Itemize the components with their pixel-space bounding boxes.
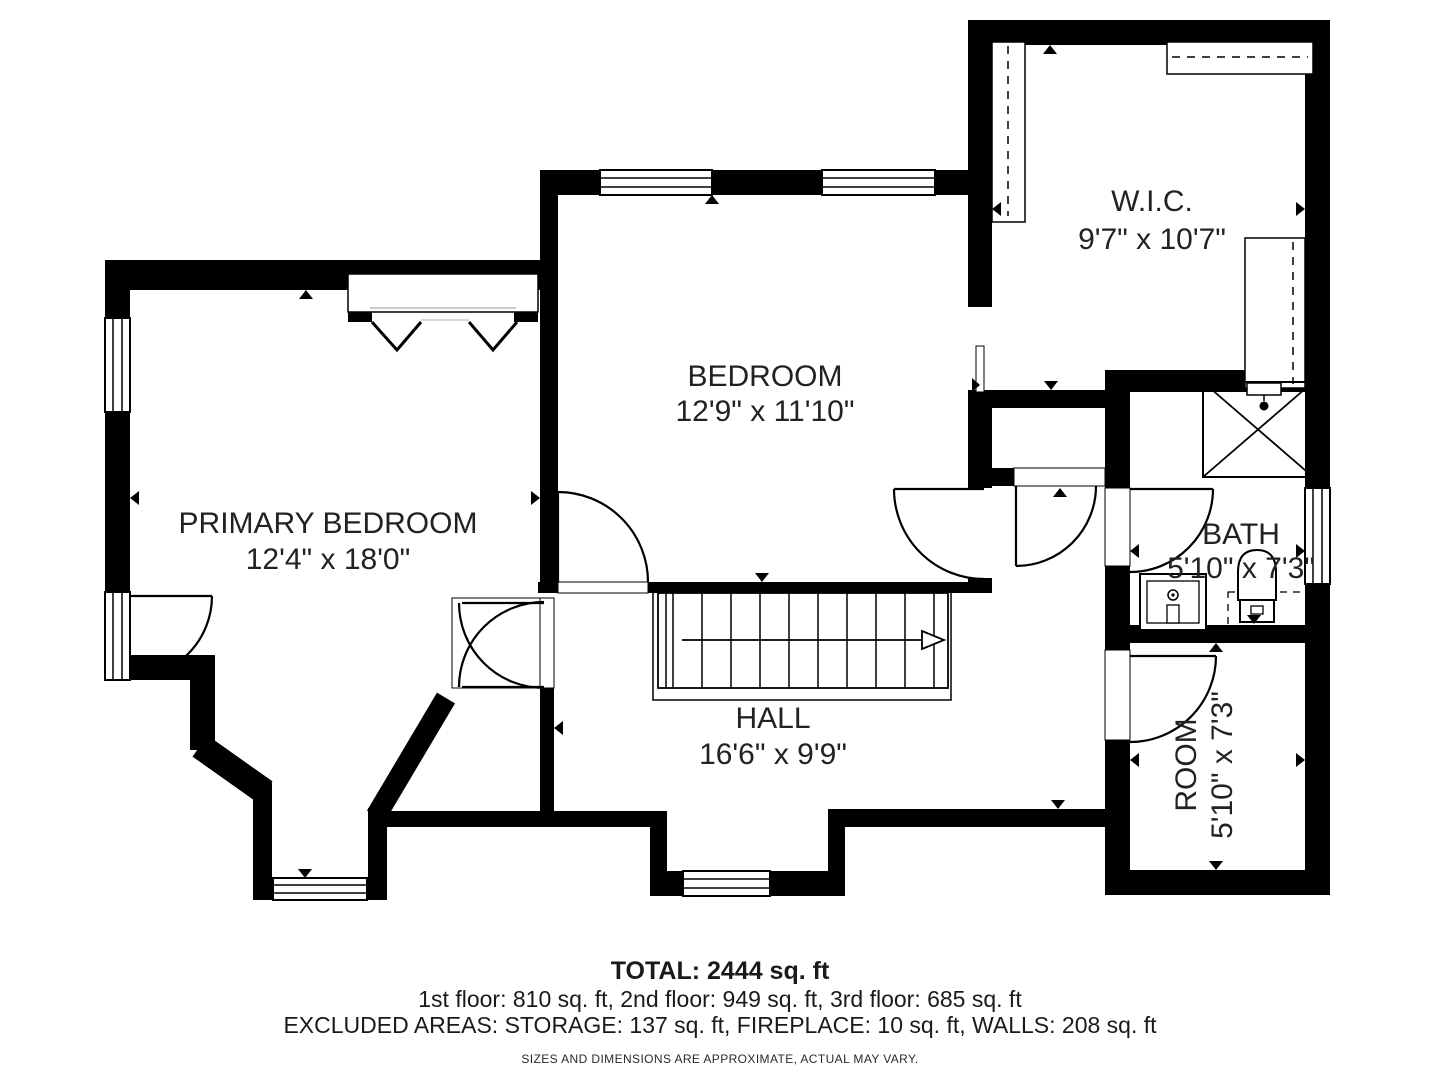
room-label-wic: W.I.C.: [1111, 185, 1193, 218]
tick-down-icon: [1044, 381, 1058, 390]
total-area-text: TOTAL: 2444 sq. ft: [0, 956, 1440, 986]
door-arc: [558, 492, 648, 582]
door: [459, 602, 544, 687]
shower-head-icon: [1247, 383, 1281, 411]
tick-left-icon: [554, 721, 563, 735]
tick-up-icon: [705, 195, 719, 204]
room-label-bath: BATH: [1202, 518, 1280, 551]
wall: [1105, 566, 1130, 650]
closet-shelf: [1245, 238, 1305, 388]
door-threshold: [540, 598, 554, 688]
tick-down-icon: [755, 573, 769, 582]
wall: [1305, 20, 1330, 895]
room-dims-bedroom: 12'9" x 11'10": [676, 395, 855, 428]
tick-up-icon: [1209, 643, 1223, 652]
window: [683, 871, 770, 896]
door-arc: [459, 602, 544, 687]
room-label-hall: HALL: [735, 702, 810, 735]
room-dims-primary-bedroom: 12'4" x 18'0": [246, 543, 411, 576]
room-dims-hall: 16'6" x 9'9": [699, 738, 847, 771]
toilet-handle: [1251, 606, 1263, 614]
door: [459, 603, 544, 688]
door-threshold: [1105, 488, 1130, 566]
closet-alcove: [348, 274, 538, 350]
hanger-mark-icon: [372, 322, 421, 350]
door: [558, 492, 648, 582]
wall: [1105, 370, 1130, 488]
tick-right-icon: [1296, 753, 1305, 767]
door-threshold: [1014, 468, 1105, 486]
room-dims-room: 5'10" x 7'3": [1206, 691, 1239, 839]
wall: [377, 811, 667, 827]
floor-plan-drawing: W.I.C. 9'7" x 10'7" BEDROOM 12'9" x 11'1…: [0, 0, 1440, 1080]
wall: [968, 20, 992, 307]
tick-down-icon: [298, 869, 312, 878]
door-arc: [894, 489, 984, 579]
tick-left-icon: [1130, 544, 1139, 558]
tick-up-icon: [299, 290, 313, 299]
wall: [968, 390, 992, 488]
hanger-mark-icon: [469, 322, 517, 350]
floor-areas-text: 1st floor: 810 sq. ft, 2nd floor: 949 sq…: [0, 986, 1440, 1012]
wall: [540, 688, 554, 827]
wall: [190, 655, 215, 750]
wall: [990, 468, 1014, 486]
window: [105, 592, 130, 680]
door-threshold: [1105, 650, 1130, 740]
stairs: [653, 593, 951, 700]
wall: [1105, 625, 1330, 643]
door-threshold: [558, 582, 648, 593]
window: [822, 170, 935, 195]
room-label-primary-bedroom: PRIMARY BEDROOM: [179, 507, 478, 540]
door-arc: [1016, 486, 1096, 566]
door-arc: [459, 603, 544, 688]
tick-up-icon: [1043, 45, 1057, 54]
wall: [828, 809, 1113, 827]
wall-diagonal: [376, 698, 446, 816]
tick-up-icon: [1053, 488, 1067, 497]
door: [1016, 486, 1096, 566]
room-dims-wic: 9'7" x 10'7": [1078, 223, 1226, 256]
tick-left-icon: [130, 491, 139, 505]
tick-down-icon: [1209, 861, 1223, 870]
disclaimer-text: SIZES AND DIMENSIONS ARE APPROXIMATE, AC…: [0, 1052, 1440, 1066]
tick-right-icon: [531, 491, 540, 505]
shower: [1203, 382, 1313, 477]
tick-down-icon: [1051, 800, 1065, 809]
room-label-bedroom: BEDROOM: [687, 360, 842, 393]
window: [105, 318, 130, 412]
excluded-areas-text: EXCLUDED AREAS: STORAGE: 137 sq. ft, FIR…: [0, 1012, 1440, 1038]
tick-left-icon: [1130, 753, 1139, 767]
tick-right-icon: [1296, 202, 1305, 216]
floor-plan-page: W.I.C. 9'7" x 10'7" BEDROOM 12'9" x 11'1…: [0, 0, 1440, 1080]
pocket-door: [968, 307, 992, 392]
closet-shelf: [1167, 42, 1313, 74]
closet-shelf: [992, 42, 1025, 222]
wall: [978, 390, 1105, 408]
summary-footer: TOTAL: 2444 sq. ft 1st floor: 810 sq. ft…: [0, 956, 1440, 1066]
bath-fixtures: [1140, 382, 1313, 630]
window: [600, 170, 712, 195]
room-dims-bath: 5'10" x 7'3": [1167, 552, 1315, 585]
window: [273, 878, 367, 900]
wall: [1105, 870, 1330, 895]
door: [894, 489, 984, 579]
closet-recess: [348, 274, 538, 312]
room-label-room: ROOM: [1170, 718, 1203, 811]
